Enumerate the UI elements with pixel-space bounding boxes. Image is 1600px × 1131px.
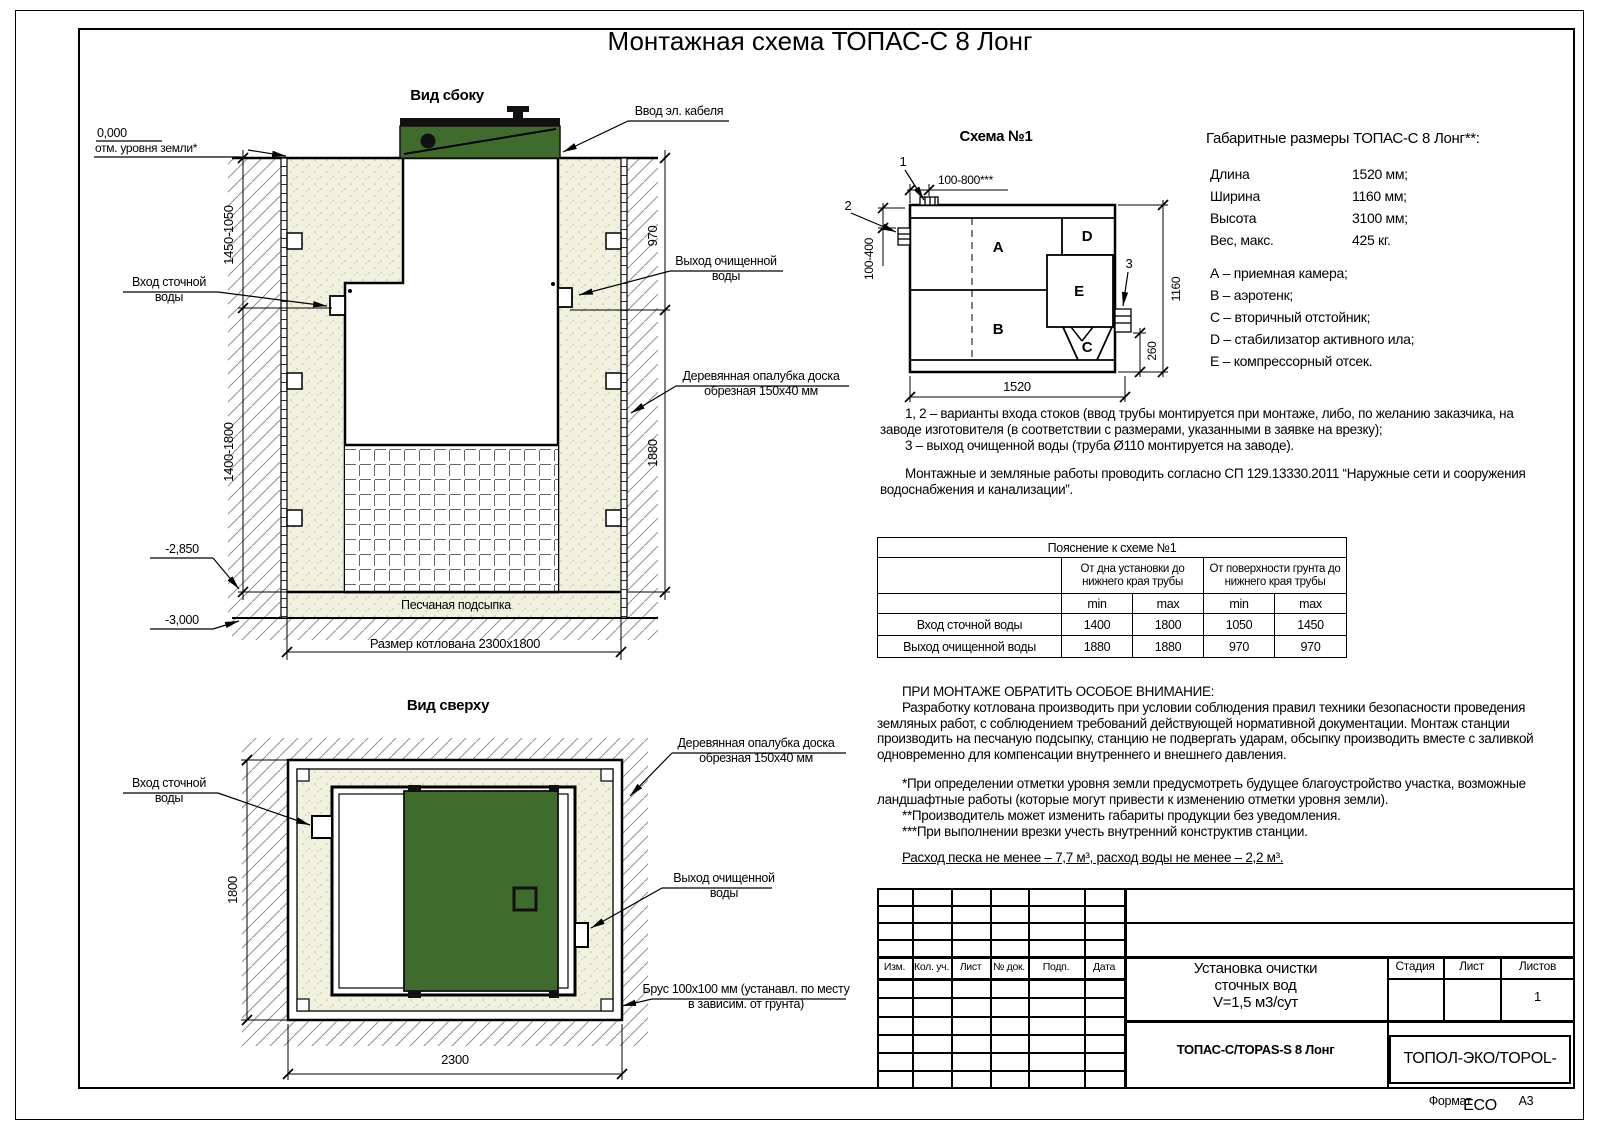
note-inlet-variants: 1, 2 – варианты входа стоков (ввод трубы… (880, 406, 1548, 437)
doc-title-line1: Установка очистки (1124, 960, 1387, 977)
spec-value: 1520 мм; (1352, 167, 1492, 182)
note-outlet: 3 – выход очищенной воды (труба Ø110 мон… (880, 438, 1548, 454)
legend-c: С – вторичный отстойник; (1210, 310, 1570, 325)
legend-d: D – стабилизатор активного ила; (1210, 332, 1570, 347)
mark-3000: -3,000 (150, 613, 214, 628)
attention-fn1: *При определении отметки уровня земли пр… (877, 776, 1547, 807)
table-row: Выход очищенной воды 1880 1880 970 970 (878, 636, 1347, 658)
table-group1: От дна установки до нижнего края трубы (1062, 558, 1204, 594)
table-title: Пояснение к схеме №1 (878, 538, 1347, 558)
sand-bed-label: Песчаная подсыпка (376, 598, 536, 613)
side-outlet-label: Выход очищенной воды (666, 254, 786, 284)
attention-para: Разработку котлована производить при усл… (877, 700, 1547, 762)
cable-entry-label: Ввод эл. кабеля (626, 104, 732, 119)
spec-name: Длина (1210, 167, 1350, 182)
tb-col-podp: Подп. (1028, 958, 1084, 976)
side-view-title: Вид сбоку (377, 88, 517, 103)
format-label: Формат (1410, 1094, 1490, 1109)
top-inlet-label: Вход сточной воды (118, 776, 220, 806)
top-formwork-label: Деревянная опалубка доска обрезная 150х4… (664, 736, 848, 766)
attention-heading: ПРИ МОНТАЖЕ ОБРАТИТЬ ОСОБОЕ ВНИМАНИЕ: (877, 684, 1547, 700)
schema-title: Схема №1 (926, 129, 1066, 144)
tb-product: ТОПАС-С/TOPAS-S 8 Лонг (1124, 1042, 1387, 1057)
specs-title: Габаритные размеры ТОПАС-С 8 Лонг**: (1206, 131, 1566, 146)
table-group2: От поверхности грунта до нижнего края тр… (1204, 558, 1347, 594)
beam-label: Брус 100х100 мм (устанавл. по месту в за… (642, 982, 850, 1012)
side-formwork-label: Деревянная опалубка доска обрезная 150х4… (670, 369, 852, 399)
tb-col-list: Лист (951, 958, 990, 976)
page-title: Монтажная схема ТОПАС-С 8 Лонг (480, 34, 1160, 49)
legend-b: В – аэротенк; (1210, 288, 1570, 303)
consumption-note: Расход песка не менее – 7,7 м³, расход в… (877, 850, 1547, 866)
table-sub: max (1133, 594, 1204, 614)
drawing-sheet: 1450-1050 1400-1800 970 1880 1800 2300 Р… (0, 0, 1600, 1131)
zero-mark: 0,000 (97, 126, 167, 141)
spec-value: 3100 мм; (1352, 211, 1492, 226)
tb-stage-label: Стадия (1387, 959, 1443, 974)
legend-e: E – компрессорный отсек. (1210, 354, 1570, 369)
attention-fn3: ***При выполнении врезки учесть внутренн… (877, 824, 1547, 840)
top-view-title: Вид сверху (378, 698, 518, 713)
tb-col-izm: Изм. (877, 958, 912, 976)
note-works: Монтажные и земляные работы проводить со… (880, 466, 1548, 497)
tb-sheets-label: Листов (1500, 959, 1575, 974)
legend-a: А – приемная камера; (1210, 266, 1570, 281)
doc-title-line3: V=1,5 м3/сут (1124, 994, 1387, 1011)
tb-sheets-value: 1 (1500, 978, 1575, 1020)
tb-col-doc: № док. (990, 958, 1028, 976)
table-sub: min (1062, 594, 1133, 614)
format-value: А3 (1501, 1094, 1551, 1109)
ground-mark: отм. уровня земли* (95, 141, 245, 156)
tb-col-kol: Кол. уч. (912, 958, 951, 976)
attention-fn2: **Производитель может изменить габариты … (877, 808, 1547, 824)
mark-2850: -2,850 (150, 542, 214, 557)
explanation-table: Пояснение к схеме №1 От дна установки до… (877, 537, 1347, 658)
table-row: Вход сточной воды 1400 1800 1050 1450 (878, 614, 1347, 636)
spec-name: Высота (1210, 211, 1350, 226)
side-inlet-label: Вход сточной воды (118, 275, 220, 305)
top-outlet-label: Выход очищенной воды (664, 871, 784, 901)
spec-value: 425 кг. (1352, 233, 1492, 248)
spec-name: Вес, макс. (1210, 233, 1350, 248)
table-sub: min (1204, 594, 1275, 614)
tb-col-data: Дата (1084, 958, 1124, 976)
spec-name: Ширина (1210, 189, 1350, 204)
table-sub: max (1275, 594, 1347, 614)
tb-sheet-label: Лист (1443, 959, 1500, 974)
doc-title-line2: сточных вод (1124, 977, 1387, 994)
tb-company: ТОПОЛ-ЭКО/TOPOL-ECO (1389, 1035, 1571, 1084)
spec-value: 1160 мм; (1352, 189, 1492, 204)
